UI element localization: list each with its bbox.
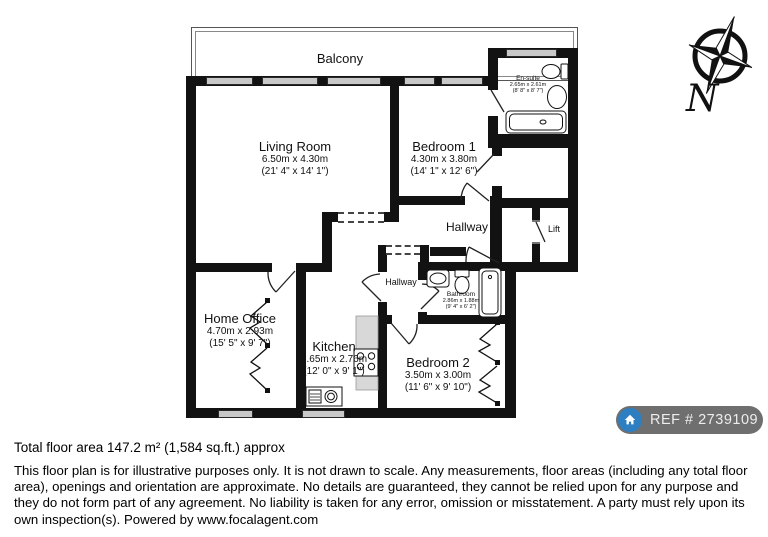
- bedroom1-door: [461, 183, 489, 201]
- window: [506, 49, 557, 57]
- bathroom-toilet: [455, 270, 469, 294]
- wall: [387, 315, 392, 324]
- window: [262, 77, 318, 85]
- house-icon: [618, 408, 642, 432]
- wall: [512, 262, 578, 272]
- ensuite-sink: [548, 86, 567, 109]
- kitchen-door: [362, 274, 381, 301]
- window: [206, 77, 253, 85]
- bathroom-sink: [427, 270, 449, 287]
- wall: [296, 263, 306, 408]
- wall: [418, 262, 427, 280]
- bedroom2-wardrobe-stops: [495, 320, 500, 406]
- wall: [399, 196, 465, 205]
- wall: [430, 247, 466, 256]
- bathroom-label: Bathroom 2.86m x 1.88m (9' 4" x 6' 2"): [443, 291, 479, 310]
- bedroom2-door: [391, 323, 417, 344]
- window: [327, 77, 381, 85]
- wall: [418, 315, 512, 324]
- wall: [186, 78, 196, 418]
- home-office-label: Home Office 4.70m x 2.93m (15' 5" x 9' 7…: [204, 312, 276, 350]
- dashed-opening: [338, 212, 384, 223]
- wall: [492, 198, 578, 208]
- wall: [488, 134, 578, 148]
- window: [302, 410, 345, 418]
- balcony-label: Balcony: [317, 51, 363, 66]
- wall: [418, 262, 512, 271]
- disclaimer-text: This floor plan is for illustrative purp…: [14, 463, 760, 528]
- window: [441, 77, 483, 85]
- bathroom-bathtub: [479, 268, 501, 317]
- lift-door: [532, 221, 545, 243]
- wall: [532, 244, 540, 264]
- wall: [488, 48, 498, 90]
- home-office-door: [268, 271, 295, 292]
- north-label: N: [685, 77, 720, 114]
- wall: [378, 302, 387, 408]
- wall: [488, 116, 498, 136]
- wall: [532, 208, 540, 220]
- lift-label: Lift: [548, 224, 560, 234]
- window: [218, 410, 253, 418]
- wall: [390, 86, 399, 216]
- bedroom1-label: Bedroom 1 4.30m x 3.80m (14' 1" x 12' 6"…: [410, 140, 477, 178]
- ensuite-bathtub: [506, 111, 566, 133]
- ensuite-label: En-suite 2.65m x 2.61m (8' 8" x 8' 7"): [510, 75, 546, 94]
- ref-number: REF # 2739109: [650, 406, 758, 434]
- window: [404, 77, 435, 85]
- compass-rose-icon: N: [672, 10, 764, 114]
- kitchen-label: Kitchen 3.65m x 2.76m (12' 0" x 9' 1"): [301, 340, 367, 378]
- dashed-opening: [386, 245, 420, 255]
- floor-plan-page: Balcony Living Room 6.50m x 4.30m (21' 4…: [0, 0, 768, 537]
- wall: [492, 148, 502, 156]
- ensuite-door: [491, 90, 504, 112]
- hallway-lower-label: Hallway: [385, 277, 417, 287]
- closet-door: [477, 154, 494, 172]
- kitchen-appliance: [306, 387, 342, 406]
- wall: [505, 262, 516, 418]
- wall: [186, 263, 272, 272]
- total-floor-area: Total floor area 147.2 m² (1,584 sq.ft.)…: [14, 440, 285, 455]
- bathroom-door: [421, 284, 439, 309]
- hallway-upper-label: Hallway: [446, 220, 488, 234]
- bedroom2-wardrobe-zigzag: [479, 324, 497, 403]
- ref-badge: REF # 2739109: [616, 406, 763, 434]
- living-room-label: Living Room 6.50m x 4.30m (21' 4" x 14' …: [259, 140, 331, 178]
- bedroom2-label: Bedroom 2 3.50m x 3.00m (11' 6" x 9' 10"…: [405, 356, 471, 394]
- wall: [568, 48, 578, 272]
